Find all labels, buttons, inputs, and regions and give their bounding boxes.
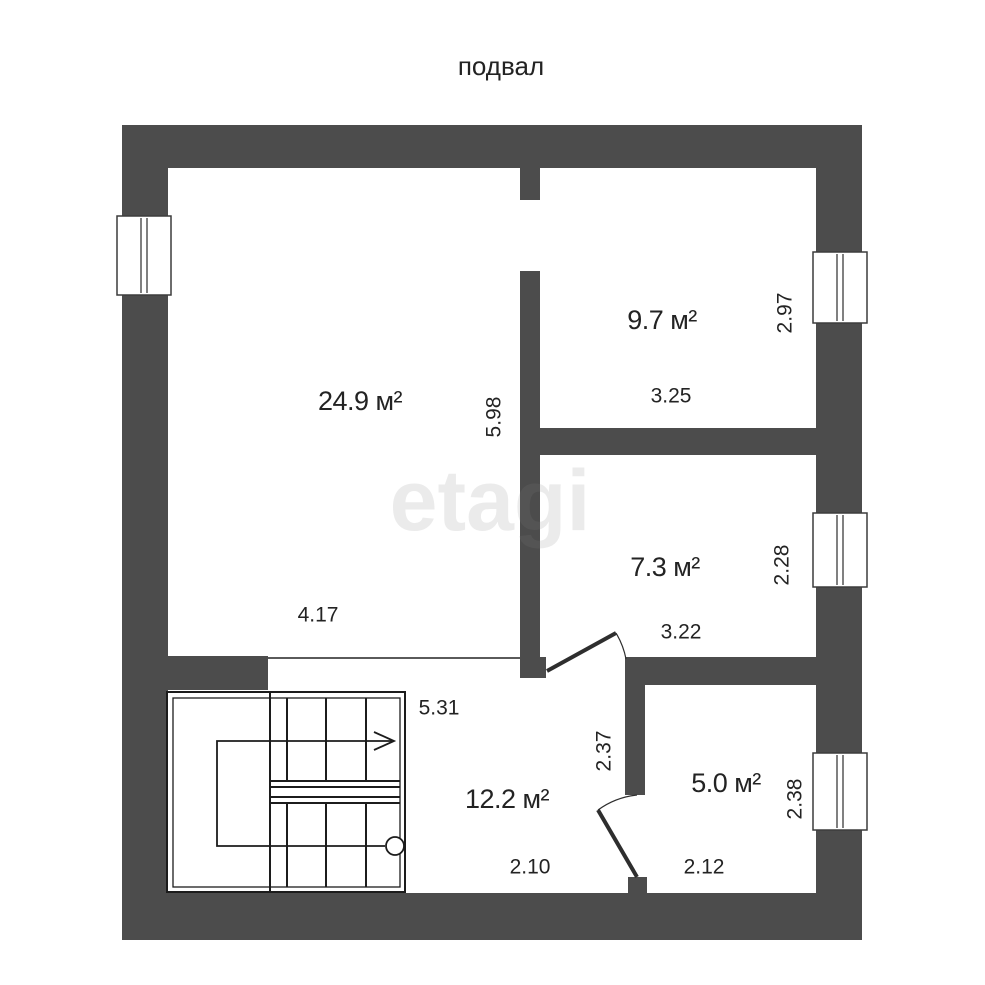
window-left (117, 216, 171, 295)
dim-main-height: 5.98 (483, 397, 506, 438)
wall-divider-97-73 (540, 428, 816, 455)
wall-below-73 (625, 657, 816, 685)
room-area-bottom-right: 5.0 м² (691, 768, 761, 798)
wall-central-top-stub (520, 168, 540, 200)
wall-50-door-stub (628, 877, 647, 893)
dim-mid-right-width: 3.22 (661, 621, 702, 644)
dim-top-right-width: 3.25 (651, 385, 692, 408)
floor-plan-canvas: подвал (0, 0, 985, 985)
wall-above-stairs (167, 656, 268, 690)
plan-title: подвал (458, 51, 544, 81)
dim-hall-bottom-width: 2.10 (510, 856, 551, 879)
room-area-hall: 12.2 м² (465, 784, 550, 814)
window-right-bottom (813, 753, 867, 830)
window-right-top (813, 252, 867, 323)
watermark-logo: etagi (390, 453, 591, 549)
room-area-main: 24.9 м² (318, 386, 403, 416)
wall-outer-bottom (122, 893, 862, 940)
dim-hall-width: 5.31 (419, 697, 460, 720)
dim-hall-height: 2.37 (593, 731, 616, 772)
floor-plan-page: подвал (0, 0, 985, 985)
room-area-mid-right: 7.3 м² (630, 552, 700, 582)
dim-main-width: 4.17 (298, 604, 339, 627)
wall-50-left (625, 685, 645, 795)
dim-bottom-right-height: 2.38 (784, 779, 807, 820)
dim-top-right-height: 2.97 (774, 293, 797, 334)
window-right-middle (813, 513, 867, 587)
stair-start-circle-icon (386, 837, 404, 855)
wall-central-foot (520, 657, 546, 678)
dim-bottom-right-width: 2.12 (684, 856, 725, 879)
dim-mid-right-height: 2.28 (771, 545, 794, 586)
room-area-top-right: 9.7 м² (627, 305, 697, 335)
wall-outer-top (122, 125, 862, 168)
